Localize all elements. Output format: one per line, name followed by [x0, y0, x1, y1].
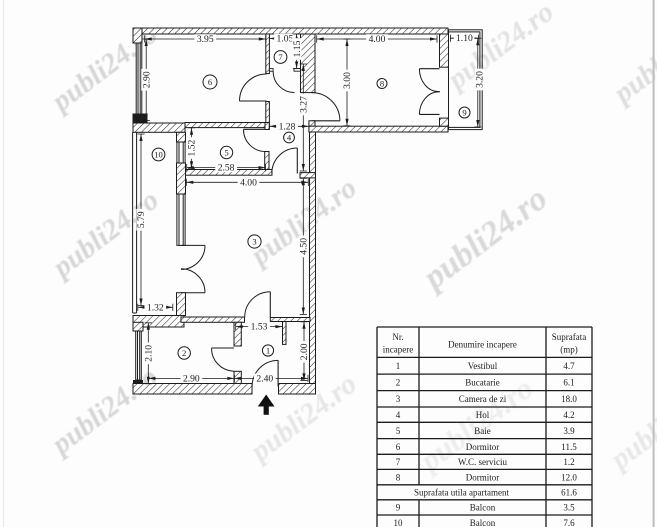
svg-text:Suprafata utila apartament: Suprafata utila apartament [414, 488, 509, 498]
svg-text:2.40: 2.40 [256, 373, 273, 384]
svg-text:3: 3 [252, 237, 256, 247]
svg-text:Balcon: Balcon [470, 503, 496, 513]
svg-text:4: 4 [396, 410, 401, 420]
svg-text:2.00: 2.00 [299, 343, 310, 360]
svg-text:7.6: 7.6 [563, 518, 575, 527]
svg-text:Denumire incapere: Denumire incapere [448, 340, 517, 350]
svg-text:3.9: 3.9 [563, 426, 575, 436]
svg-text:1.10: 1.10 [456, 33, 473, 44]
svg-text:10: 10 [394, 518, 404, 527]
svg-text:3.20: 3.20 [475, 71, 486, 88]
svg-text:Suprafata: Suprafata [552, 332, 586, 342]
svg-text:1.32: 1.32 [147, 302, 164, 313]
svg-text:1.2: 1.2 [563, 457, 574, 467]
svg-text:3.27: 3.27 [299, 96, 310, 113]
svg-text:Nr.: Nr. [392, 332, 403, 342]
svg-text:3.5: 3.5 [563, 503, 575, 513]
svg-text:2.90: 2.90 [183, 373, 200, 384]
svg-text:5: 5 [224, 148, 228, 158]
svg-text:4: 4 [287, 133, 292, 143]
svg-text:2.58: 2.58 [218, 163, 235, 174]
svg-text:4.7: 4.7 [563, 361, 575, 371]
svg-text:8: 8 [380, 79, 384, 89]
svg-text:incapere: incapere [383, 345, 413, 355]
svg-text:1.53: 1.53 [251, 322, 268, 333]
svg-text:12.0: 12.0 [561, 472, 577, 482]
svg-text:Dormitor: Dormitor [466, 472, 500, 482]
svg-text:Balcon: Balcon [470, 518, 496, 527]
svg-text:4.50: 4.50 [299, 238, 310, 255]
svg-text:8: 8 [396, 472, 401, 482]
svg-text:Hol: Hol [476, 410, 490, 420]
svg-text:1.15: 1.15 [292, 40, 303, 57]
svg-text:5.79: 5.79 [136, 211, 147, 228]
svg-text:11.5: 11.5 [561, 442, 577, 452]
svg-text:9: 9 [396, 503, 401, 513]
svg-text:Baie: Baie [474, 426, 491, 436]
svg-text:4.00: 4.00 [240, 177, 257, 188]
svg-text:Camera de zi: Camera de zi [459, 394, 507, 404]
svg-text:2: 2 [182, 348, 186, 358]
svg-text:1: 1 [396, 361, 401, 371]
svg-text:2: 2 [396, 378, 401, 388]
svg-text:3: 3 [396, 394, 401, 404]
svg-text:1.28: 1.28 [279, 121, 296, 132]
svg-text:W.C. serviciu: W.C. serviciu [458, 457, 507, 467]
svg-text:10: 10 [154, 150, 163, 160]
svg-text:6: 6 [396, 442, 401, 452]
svg-text:18.0: 18.0 [561, 394, 577, 404]
svg-text:Dormitor: Dormitor [466, 442, 500, 452]
svg-text:5: 5 [396, 426, 401, 436]
svg-text:Bucatarie: Bucatarie [465, 378, 499, 388]
svg-text:4.00: 4.00 [369, 34, 386, 45]
svg-text:1: 1 [266, 346, 270, 356]
svg-text:7: 7 [278, 52, 283, 62]
svg-text:2.10: 2.10 [144, 345, 155, 362]
svg-text:6.1: 6.1 [563, 378, 574, 388]
svg-text:61.6: 61.6 [561, 488, 577, 498]
svg-text:7: 7 [396, 457, 401, 467]
svg-text:4.2: 4.2 [563, 410, 574, 420]
svg-text:Vestibul: Vestibul [468, 361, 498, 371]
svg-text:6: 6 [208, 77, 213, 87]
svg-text:(mp): (mp) [560, 345, 578, 355]
svg-text:2.90: 2.90 [141, 71, 152, 88]
svg-text:1.52: 1.52 [187, 139, 198, 156]
svg-text:9: 9 [462, 108, 466, 118]
svg-text:3.95: 3.95 [197, 34, 214, 45]
svg-text:3.00: 3.00 [342, 72, 353, 89]
